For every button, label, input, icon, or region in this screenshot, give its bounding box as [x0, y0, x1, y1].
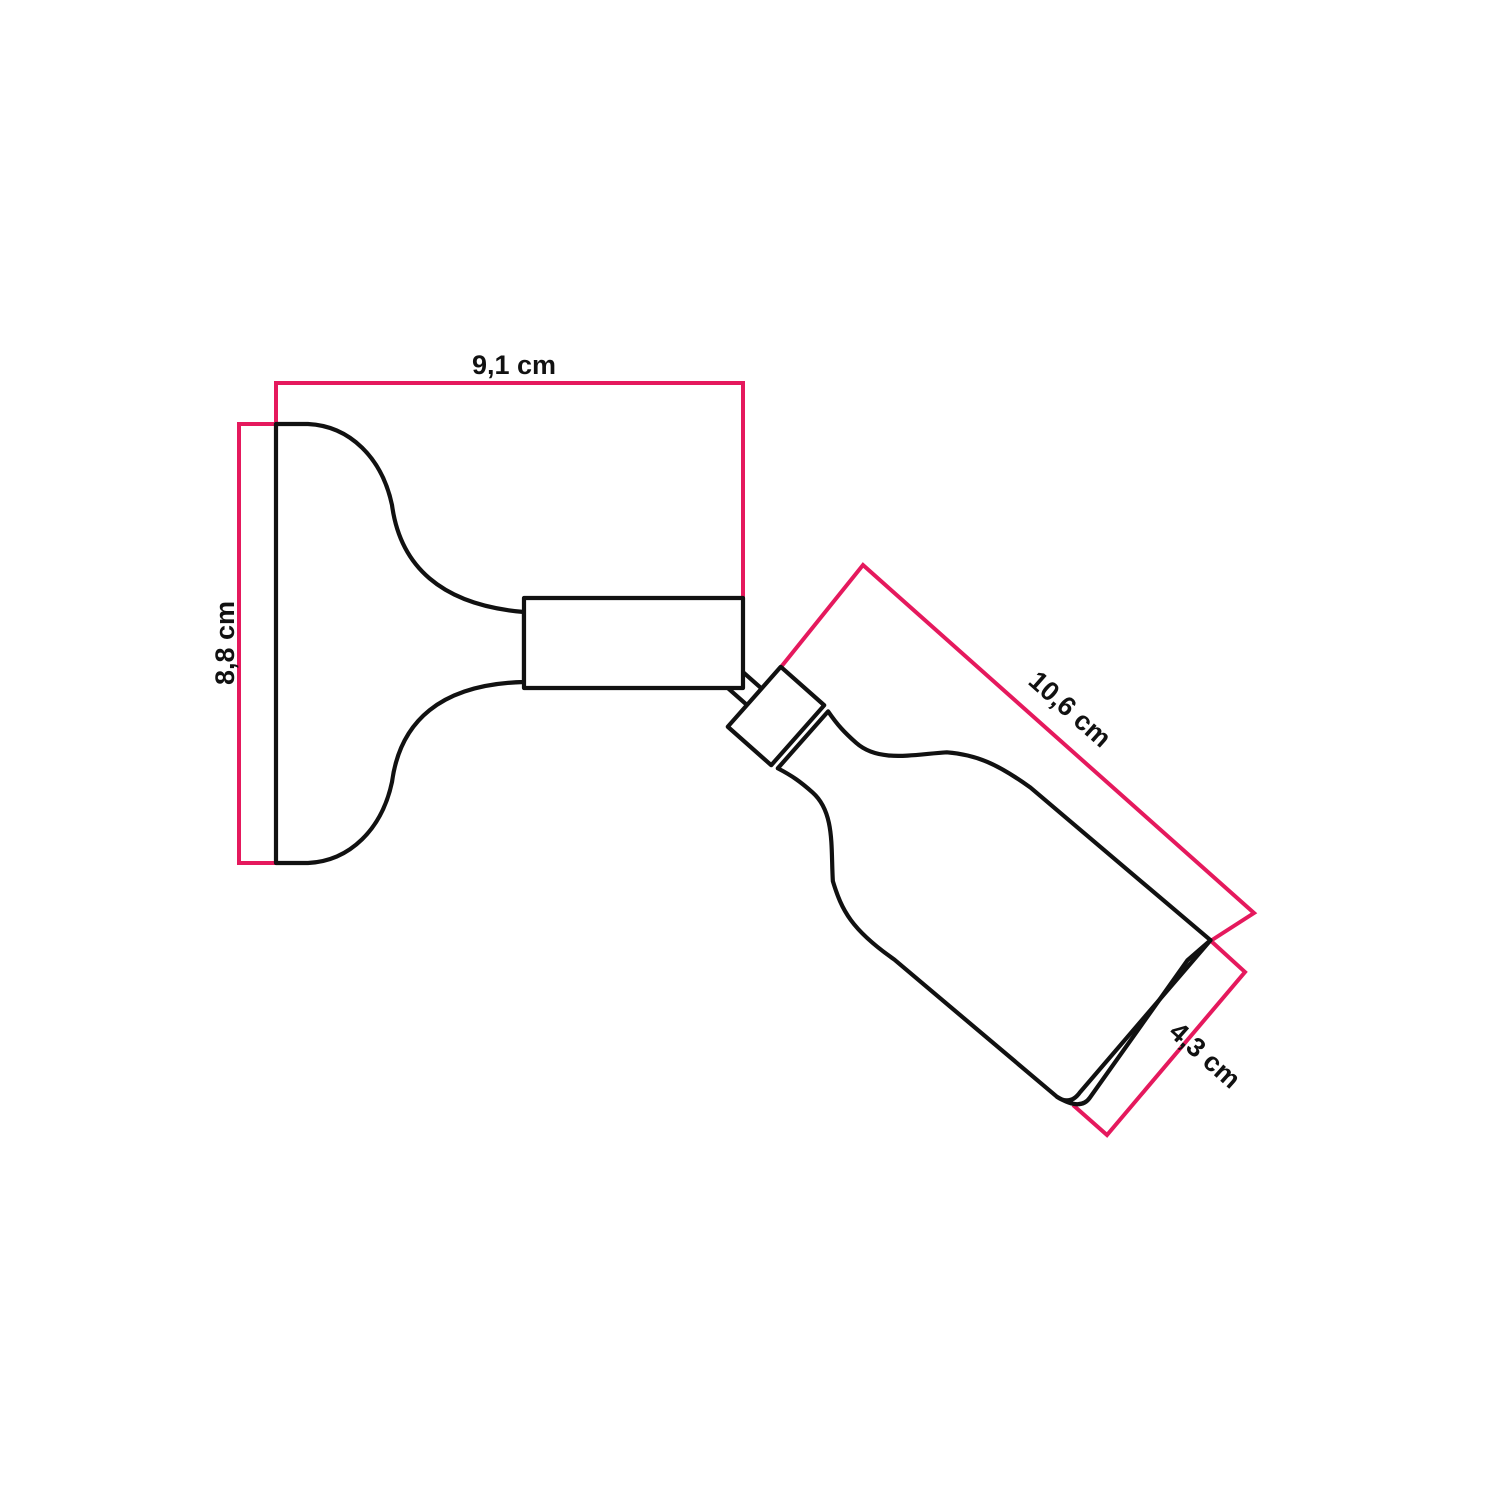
dimension-diagram-canvas: 9,1 cm 8,8 cm 10,6 cm 4,3 cm: [0, 0, 1500, 1500]
base-height-dimension-line: [239, 424, 276, 863]
coupler-cylinder-outline: [524, 598, 743, 688]
base-width-dimension-label: 9,1 cm: [472, 350, 556, 380]
base-height-dimension-label: 8,8 cm: [210, 601, 240, 685]
holder-length-dimension-label: 10,6 cm: [1023, 665, 1117, 753]
lamp-dimension-diagram: 9,1 cm 8,8 cm 10,6 cm 4,3 cm: [0, 0, 1500, 1500]
wall-base-outline: [276, 424, 524, 863]
